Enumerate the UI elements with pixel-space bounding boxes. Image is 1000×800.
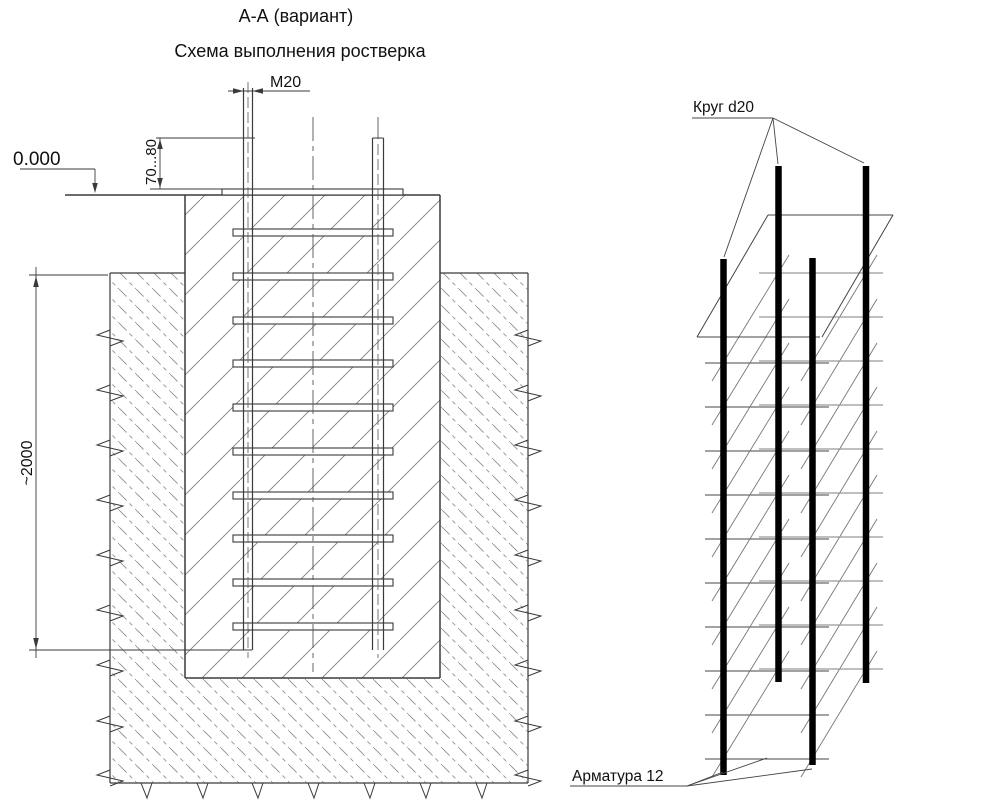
base-plate (222, 189, 403, 195)
scheme-title: Схема выполнения ростверка (174, 41, 426, 61)
rung-plate (233, 579, 393, 586)
dim-bolt-protrusion (156, 138, 255, 189)
embedment-depth-label: ~2000 (19, 440, 36, 485)
bolt-protrusion-label: 70...80 (143, 139, 160, 185)
section-view (20, 82, 541, 798)
dim-arrow (253, 88, 264, 94)
section-title: А-А (вариант) (239, 6, 354, 26)
technical-drawing: А-А (вариант) Схема выполнения ростверка… (0, 0, 1000, 800)
dim-arrow (233, 88, 244, 94)
anchor-thread-label: М20 (270, 74, 301, 91)
bottom-break-symbol (308, 783, 319, 798)
bottom-break-symbol (364, 783, 375, 798)
dim-arrow (33, 276, 39, 287)
bottom-break-symbol (141, 783, 152, 798)
elevation-label: 0.000 (13, 149, 61, 170)
leader-arrow (92, 183, 98, 193)
elevation-leader (20, 169, 98, 193)
rebar-cage-view (570, 118, 893, 786)
tie-levels (705, 255, 883, 777)
dim-arrow (33, 638, 39, 649)
bottom-break-symbol (197, 783, 208, 798)
round-bar-label: Круг d20 (693, 99, 754, 116)
pier-hatch (185, 195, 440, 678)
bottom-break-symbol (420, 783, 431, 798)
rebar-label: Арматура 12 (572, 768, 664, 785)
bottom-break-symbol (252, 783, 263, 798)
bottom-break-symbol (476, 783, 487, 798)
round-bars (724, 166, 867, 775)
